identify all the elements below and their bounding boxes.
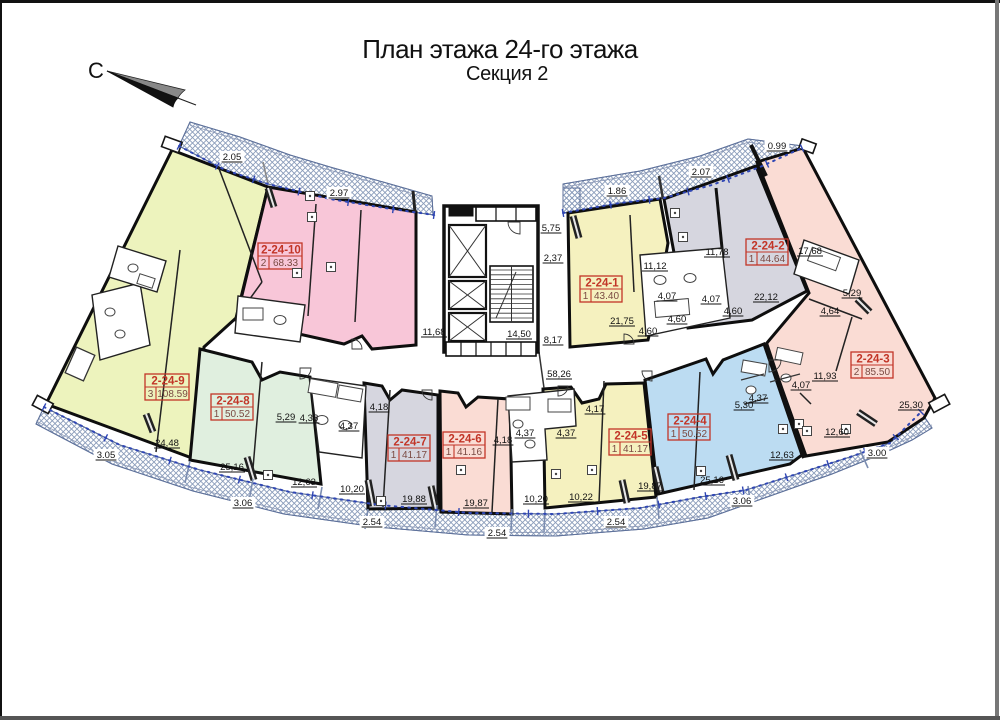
svg-text:1: 1 — [583, 291, 589, 302]
svg-text:10,20: 10,20 — [340, 484, 364, 495]
svg-text:108.59: 108.59 — [157, 389, 188, 400]
svg-text:3.06: 3.06 — [733, 496, 752, 507]
svg-text:2-24-1: 2-24-1 — [585, 278, 619, 290]
svg-text:С: С — [88, 58, 104, 83]
svg-text:4,37: 4,37 — [557, 428, 576, 439]
svg-text:4,37: 4,37 — [340, 421, 359, 432]
svg-text:25,16: 25,16 — [700, 475, 724, 486]
svg-text:2.54: 2.54 — [363, 517, 382, 528]
svg-text:2-24-7: 2-24-7 — [393, 437, 426, 449]
svg-text:8,17: 8,17 — [544, 335, 563, 346]
svg-text:50.52: 50.52 — [225, 409, 250, 420]
svg-text:2-24-3: 2-24-3 — [856, 354, 889, 366]
svg-text:2-24-6: 2-24-6 — [448, 434, 481, 446]
svg-text:0.99: 0.99 — [768, 141, 787, 152]
svg-text:2.05: 2.05 — [223, 152, 242, 163]
svg-text:19,87: 19,87 — [638, 481, 662, 492]
svg-text:4,07: 4,07 — [658, 291, 677, 302]
svg-text:3.05: 3.05 — [97, 450, 116, 461]
svg-text:44.64: 44.64 — [760, 254, 785, 265]
svg-text:4,38: 4,38 — [300, 413, 319, 424]
svg-text:4,37: 4,37 — [516, 428, 535, 439]
svg-text:2.07: 2.07 — [692, 167, 711, 178]
svg-text:4,60: 4,60 — [639, 326, 658, 337]
svg-text:1: 1 — [671, 429, 677, 440]
svg-text:10,22: 10,22 — [569, 492, 593, 503]
svg-text:12,63: 12,63 — [292, 477, 316, 488]
svg-text:17,68: 17,68 — [798, 246, 822, 257]
svg-text:2-24-2: 2-24-2 — [751, 241, 784, 253]
svg-text:1: 1 — [446, 447, 452, 458]
svg-text:21,75: 21,75 — [610, 316, 634, 327]
svg-text:3: 3 — [148, 389, 154, 400]
svg-text:12,63: 12,63 — [770, 450, 794, 461]
svg-text:2.54: 2.54 — [607, 517, 626, 528]
svg-text:2-24-8: 2-24-8 — [216, 396, 250, 408]
svg-text:2: 2 — [261, 258, 267, 269]
svg-text:3.06: 3.06 — [234, 498, 253, 509]
svg-text:4,17: 4,17 — [586, 404, 605, 415]
svg-text:2-24-9: 2-24-9 — [151, 376, 184, 388]
svg-text:14,50: 14,50 — [507, 329, 531, 340]
svg-text:25,30: 25,30 — [899, 400, 923, 411]
svg-text:5,29: 5,29 — [843, 288, 862, 299]
svg-text:2-24-5: 2-24-5 — [614, 431, 648, 443]
svg-text:План этажа 24-го этажа: План этажа 24-го этажа — [362, 34, 639, 64]
svg-text:Секция 2: Секция 2 — [466, 63, 548, 85]
svg-text:58,26: 58,26 — [547, 369, 571, 380]
svg-text:1: 1 — [391, 450, 397, 461]
svg-text:4,18: 4,18 — [494, 435, 513, 446]
svg-text:2.54: 2.54 — [488, 528, 507, 539]
svg-text:85.50: 85.50 — [865, 367, 890, 378]
svg-text:4,18: 4,18 — [370, 402, 389, 413]
svg-text:1: 1 — [214, 409, 220, 420]
svg-text:1: 1 — [749, 254, 755, 265]
svg-text:4,07: 4,07 — [792, 380, 811, 391]
svg-text:11,68: 11,68 — [422, 327, 445, 338]
svg-text:2.97: 2.97 — [330, 188, 349, 199]
svg-text:50.52: 50.52 — [682, 429, 707, 440]
svg-text:3.00: 3.00 — [868, 448, 887, 459]
svg-text:12,60: 12,60 — [825, 427, 849, 438]
svg-text:5,75: 5,75 — [542, 223, 561, 234]
svg-text:10,20: 10,20 — [524, 494, 548, 505]
svg-text:4,60: 4,60 — [724, 306, 743, 317]
svg-text:25,16: 25,16 — [220, 462, 244, 473]
svg-text:24,48: 24,48 — [155, 438, 179, 449]
svg-text:41.17: 41.17 — [402, 450, 427, 461]
svg-text:41.17: 41.17 — [623, 444, 648, 455]
svg-text:4,07: 4,07 — [702, 294, 721, 305]
svg-text:22,12: 22,12 — [754, 292, 778, 303]
svg-text:4,37: 4,37 — [749, 393, 768, 404]
svg-text:2,37: 2,37 — [544, 253, 563, 264]
svg-text:5,29: 5,29 — [277, 412, 296, 423]
svg-text:11,12: 11,12 — [643, 261, 666, 272]
svg-text:19,88: 19,88 — [402, 494, 426, 505]
svg-text:1.86: 1.86 — [608, 186, 627, 197]
svg-text:2-24-4: 2-24-4 — [673, 416, 707, 428]
svg-text:43.40: 43.40 — [594, 291, 619, 302]
svg-text:11,93: 11,93 — [813, 371, 836, 382]
svg-text:68.33: 68.33 — [273, 258, 298, 269]
svg-text:2: 2 — [854, 367, 860, 378]
svg-text:19,87: 19,87 — [464, 498, 488, 509]
svg-text:4,64: 4,64 — [821, 306, 840, 317]
svg-text:2-24-10: 2-24-10 — [261, 245, 301, 257]
svg-text:11,78: 11,78 — [705, 247, 728, 258]
svg-text:1: 1 — [612, 444, 618, 455]
svg-text:41.16: 41.16 — [457, 447, 482, 458]
svg-text:4,60: 4,60 — [668, 314, 687, 325]
